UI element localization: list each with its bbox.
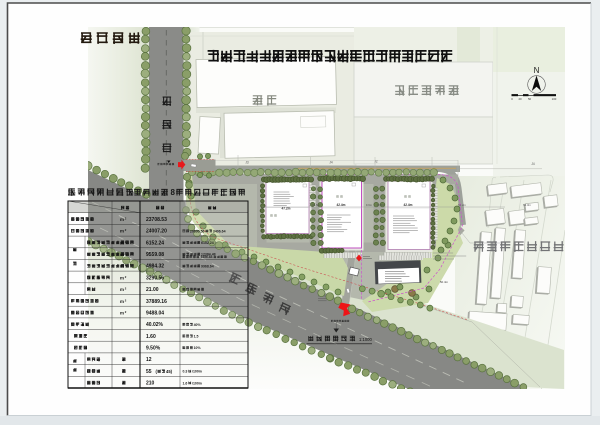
svg-text:40.02%: 40.02% [146, 322, 164, 328]
svg-text:9968.64: 9968.64 [201, 264, 214, 268]
svg-text:m: m [120, 287, 124, 292]
svg-text:m: m [120, 311, 124, 316]
svg-text:/100m: /100m [192, 370, 202, 374]
svg-text:23708.53: 23708.53 [146, 217, 167, 223]
svg-text:8: 8 [171, 188, 176, 197]
svg-text:m: m [120, 252, 124, 257]
svg-text:9559.08: 9559.08 [146, 252, 164, 258]
svg-text:9.6m: 9.6m [366, 203, 373, 207]
svg-text:55: 55 [146, 369, 152, 375]
svg-text:20: 20 [518, 97, 522, 101]
svg-text:/100m: /100m [192, 381, 202, 385]
svg-text:20600.56: 20600.56 [190, 229, 205, 233]
svg-text:1:1000: 1:1000 [359, 337, 372, 342]
svg-text:45): 45) [166, 369, 173, 374]
svg-text:6152.24: 6152.24 [146, 240, 164, 246]
svg-text:21.00: 21.00 [146, 287, 159, 293]
svg-text:m: m [120, 240, 124, 245]
svg-text:100: 100 [552, 97, 557, 101]
svg-text:J3: J3 [245, 161, 249, 165]
svg-text:m: m [120, 275, 124, 280]
svg-text:3406.64: 3406.64 [213, 229, 226, 233]
svg-text:0.3: 0.3 [183, 370, 188, 374]
svg-text:24007.20: 24007.20 [146, 229, 167, 235]
svg-text:10.5m: 10.5m [377, 203, 385, 207]
svg-text:3456.84: 3456.84 [201, 255, 213, 259]
svg-text:m: m [120, 229, 124, 234]
svg-text:1.5: 1.5 [194, 335, 199, 339]
svg-text:50.4m: 50.4m [440, 280, 449, 284]
svg-text:N: N [534, 66, 540, 75]
svg-text:40%: 40% [194, 323, 202, 327]
svg-text:4984.32: 4984.32 [146, 264, 164, 270]
svg-text:42.4m: 42.4m [403, 203, 412, 207]
svg-text:37889.16: 37889.16 [146, 299, 167, 305]
svg-text:6152.24: 6152.24 [201, 241, 214, 245]
svg-text:m: m [120, 217, 124, 222]
svg-text:J4: J4 [329, 161, 333, 165]
svg-text:m: m [120, 264, 124, 269]
svg-text:3290.56: 3290.56 [146, 275, 164, 281]
svg-text:1.60: 1.60 [146, 334, 156, 340]
svg-text:53.2m: 53.2m [458, 203, 466, 207]
svg-text:42.4m: 42.4m [336, 203, 345, 207]
svg-text:m: m [120, 299, 124, 304]
svg-text:9488.04: 9488.04 [146, 311, 164, 317]
svg-text:J4: J4 [531, 162, 535, 166]
svg-text:210: 210 [146, 381, 155, 387]
svg-text:1.6: 1.6 [183, 381, 188, 385]
svg-text:50: 50 [528, 97, 532, 101]
svg-text:10.5m: 10.5m [312, 203, 320, 207]
svg-text:53.3m: 53.3m [523, 203, 531, 207]
svg-text:10%: 10% [194, 346, 202, 350]
svg-text:12: 12 [146, 357, 152, 363]
svg-text:9.50%: 9.50% [146, 346, 161, 352]
